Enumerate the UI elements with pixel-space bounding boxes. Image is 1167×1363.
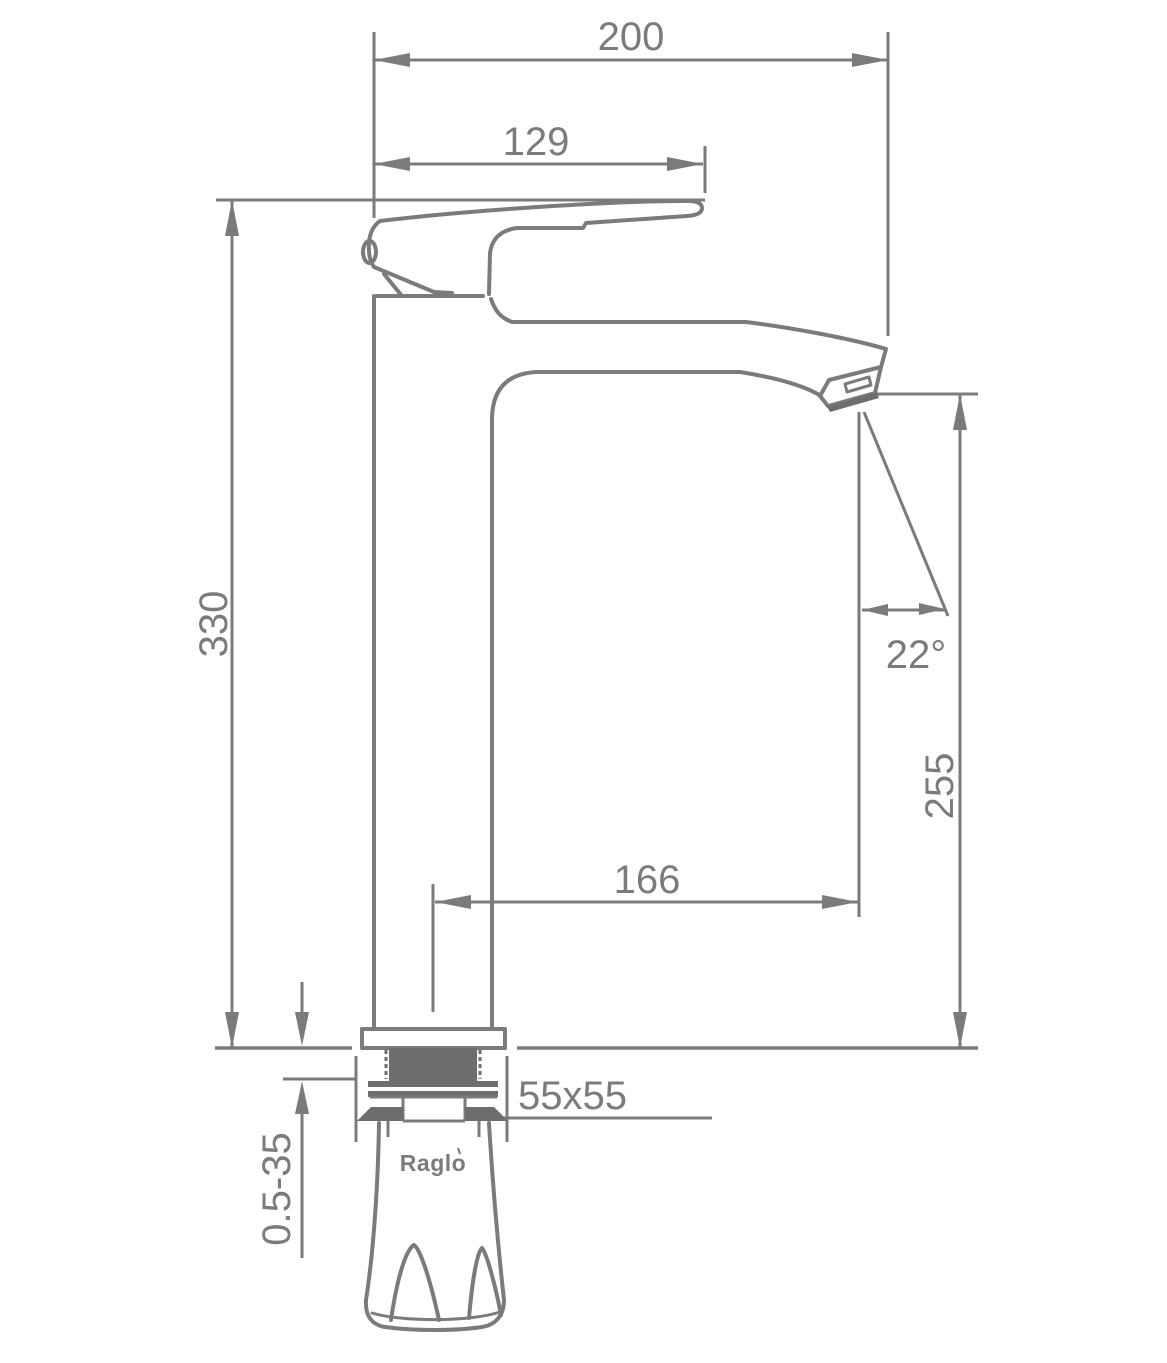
arrowhead-up <box>295 1081 309 1114</box>
base-plate <box>362 1029 505 1048</box>
arrowhead-right <box>852 53 888 67</box>
supply-hose: Raglo <box>366 1123 504 1330</box>
dim-label-total-reach: 200 <box>598 15 665 59</box>
faucet-handle <box>363 201 702 296</box>
dim-label-body-height: 330 <box>192 591 236 658</box>
arrowhead-right <box>919 603 945 615</box>
dim-label-handle-length: 129 <box>503 120 570 164</box>
dimension-total-reach: 200 <box>374 15 888 336</box>
dim-label-spout-height: 255 <box>918 753 962 820</box>
spout-top-edge <box>491 299 886 367</box>
arrowhead-left <box>862 604 888 616</box>
arrowhead-right <box>667 157 703 171</box>
dim-label-spout-angle: 22° <box>886 633 947 677</box>
dimension-spout-height: 255 <box>873 394 978 1048</box>
dimension-body-height: 330 <box>192 200 705 1048</box>
arrowhead-left <box>374 53 410 67</box>
aerator-insert <box>845 377 871 392</box>
mounting-hardware <box>357 1029 508 1137</box>
dimension-spout-reach: 166 <box>433 858 858 1012</box>
angled-reference-line <box>864 412 948 616</box>
dimension-mount-thickness: 0.5-35 <box>255 982 356 1258</box>
wing-nut-right <box>465 1107 508 1121</box>
hose-prong-left <box>391 1245 439 1320</box>
arrowhead-left <box>435 895 471 909</box>
arrowhead-down <box>953 1012 967 1048</box>
arrowhead-left <box>374 157 410 171</box>
faucet-drawing: 200 129 330 255 166 22° <box>0 0 1167 1363</box>
handle-left-edge <box>369 221 452 293</box>
dim-label-spout-reach: 166 <box>614 858 681 902</box>
hose-left-edge <box>366 1123 379 1300</box>
arrowhead-right <box>822 895 858 909</box>
dimension-spout-angle: 22° <box>859 412 948 917</box>
washer-upper <box>368 1081 498 1087</box>
faucet-body <box>374 296 886 1029</box>
aerator <box>820 367 881 412</box>
hose-prong-right <box>469 1248 501 1318</box>
threaded-shank <box>389 1048 477 1081</box>
dim-label-mount-thickness: 0.5-35 <box>255 1132 299 1245</box>
spout-underside <box>492 372 821 418</box>
technical-drawing-canvas: 200 129 330 255 166 22° <box>0 0 1167 1363</box>
arrowhead-down <box>295 1012 309 1046</box>
arrowhead-down <box>225 1012 239 1048</box>
wing-nut-left <box>357 1107 403 1121</box>
dim-label-base-size: 55x55 <box>518 1074 627 1118</box>
brand-logo: Raglo <box>400 1150 466 1176</box>
handle-outline <box>380 201 702 294</box>
arrowhead-up <box>225 200 239 236</box>
arrowhead-up <box>953 394 967 430</box>
dimension-handle-length: 129 <box>374 120 705 193</box>
